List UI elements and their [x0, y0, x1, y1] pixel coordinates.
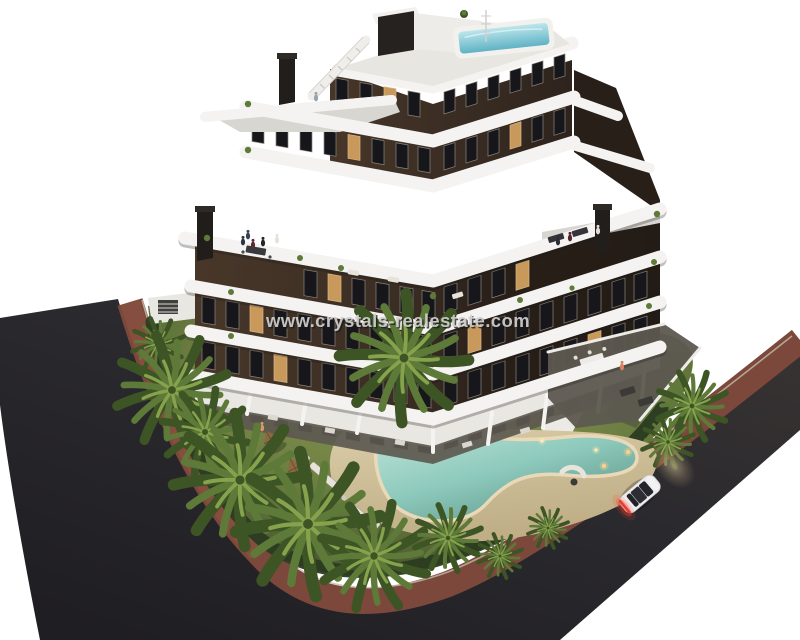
render-canvas: www.crystals-realestate.com www.crystals… — [0, 0, 800, 640]
person — [568, 232, 572, 242]
person — [556, 236, 560, 246]
scene-svg: www.crystals-realestate.com www.crystals… — [0, 0, 800, 640]
person — [275, 234, 279, 244]
stair-tower — [378, 11, 414, 56]
person — [596, 225, 600, 235]
person — [246, 230, 250, 240]
chimney — [277, 53, 297, 105]
person — [251, 239, 255, 249]
person — [241, 236, 245, 246]
roof-plant — [460, 10, 468, 18]
chimney — [195, 206, 215, 261]
chimney — [593, 204, 612, 255]
person — [620, 361, 624, 371]
watermark-text: www.crystals-realestate.com — [265, 310, 530, 331]
person — [314, 92, 318, 102]
person — [261, 237, 265, 247]
